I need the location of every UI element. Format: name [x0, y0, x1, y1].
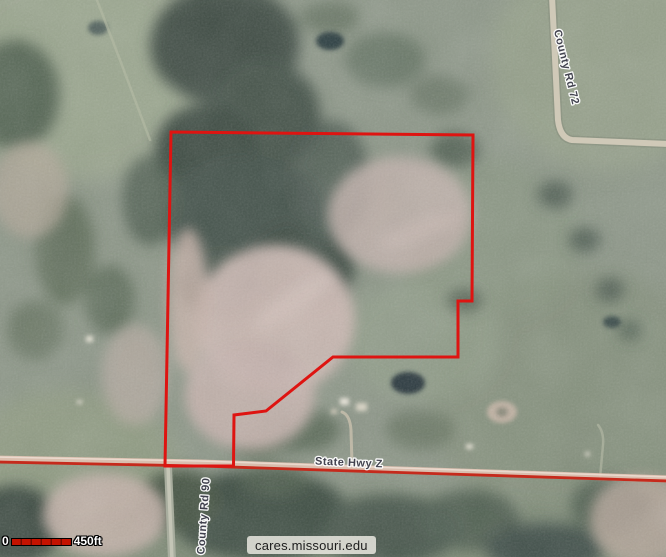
aerial-imagery-canvas: State Hwy Z County Rd 90 County Rd 72 — [0, 0, 666, 557]
attribution-watermark: cares.missouri.edu — [247, 536, 376, 554]
aerial-map-view[interactable]: State Hwy Z County Rd 90 County Rd 72 0 … — [0, 0, 666, 557]
scale-end-label: 450ft — [74, 535, 102, 548]
scale-start-label: 0 — [2, 535, 9, 548]
scale-bar-rect — [11, 538, 72, 546]
map-scale-bar: 0 450ft — [2, 535, 102, 548]
